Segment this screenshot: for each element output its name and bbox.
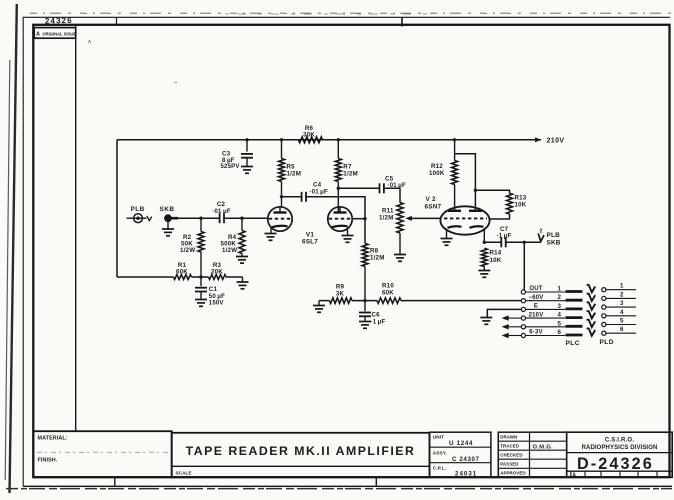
svg-text:10K: 10K [490,257,502,264]
svg-text:5: 5 [558,320,562,327]
svg-text:−60V: −60V [529,295,544,301]
svg-text:6: 6 [620,326,624,333]
svg-text:∼: ∼ [174,80,178,86]
svg-text:C5: C5 [385,176,394,183]
svg-text:·1 μF: ·1 μF [371,320,386,326]
svg-text:A: A [36,32,40,38]
svg-text:3: 3 [620,300,624,307]
svg-text:CHECKED: CHECKED [500,453,522,458]
svg-text:100K: 100K [429,170,445,177]
svg-text:PASSED: PASSED [500,462,518,467]
svg-text:TAPE READER MK.II AMPLIFIER: TAPE READER MK.II AMPLIFIER [186,444,416,458]
svg-text:4: 4 [558,312,562,319]
svg-text:1/2W: 1/2W [180,247,195,254]
svg-text:6·3V: 6·3V [529,330,542,336]
svg-text:60K: 60K [176,269,188,276]
svg-text:C6: C6 [372,311,381,318]
svg-text:R8: R8 [370,248,379,255]
svg-text:150V: 150V [209,301,224,307]
svg-text:C.S.I.R.O.: C.S.I.R.O. [605,438,634,444]
svg-text:V 2: V 2 [426,196,436,203]
svg-text:APPROVED: APPROVED [500,471,525,476]
svg-text:R12: R12 [431,163,443,170]
svg-text:·01 μF: ·01 μF [310,189,329,195]
svg-text:·1 μF: ·1 μF [497,234,512,240]
svg-text:210V: 210V [547,138,565,145]
svg-text:PLB: PLB [547,232,561,239]
svg-text:R11: R11 [382,207,394,214]
svg-text:3K: 3K [336,290,345,297]
svg-text:24031: 24031 [455,471,477,478]
svg-text:UNIT: UNIT [433,435,444,440]
svg-text:PLB: PLB [131,206,145,213]
svg-text:1/2M: 1/2M [343,170,358,177]
svg-text:SKB: SKB [547,239,561,246]
svg-text:TRACED: TRACED [500,444,519,449]
svg-text:U 1244: U 1244 [449,440,473,447]
svg-text:PLD: PLD [600,339,614,346]
svg-text:6SL7: 6SL7 [302,239,318,246]
svg-text:A: A [572,472,576,478]
svg-text:4: 4 [620,309,624,316]
svg-text:D-24326: D-24326 [577,455,654,473]
svg-text:8 μF: 8 μF [222,158,235,164]
svg-text:R13: R13 [515,194,527,201]
svg-text:R14: R14 [490,250,502,257]
svg-text:C 24307: C 24307 [452,456,480,463]
svg-text:RADIOPHYSICS DIVISION: RADIOPHYSICS DIVISION [582,445,658,451]
svg-text:FINISH.: FINISH. [38,457,58,463]
svg-text:E: E [534,304,538,310]
svg-text:MATERIAL:: MATERIAL: [38,436,68,442]
svg-text:DRAWN: DRAWN [500,435,517,440]
svg-text:6SN7: 6SN7 [425,204,442,211]
svg-text:2: 2 [620,291,624,298]
svg-text:60K: 60K [382,289,394,296]
svg-text:1: 1 [558,286,562,293]
svg-text:ASSY.: ASSY. [433,451,447,456]
svg-text:V1: V1 [306,232,314,239]
svg-text:C4: C4 [313,182,322,189]
svg-text:C3: C3 [222,151,231,158]
svg-text:2: 2 [558,294,562,301]
svg-text:30K: 30K [303,131,315,138]
svg-text:OUT: OUT [529,286,542,292]
svg-text:1/2M: 1/2M [287,170,302,177]
svg-text:C2: C2 [217,201,226,208]
svg-text:SKB: SKB [160,206,175,213]
svg-text:3: 3 [558,303,562,310]
svg-text:20K: 20K [211,269,223,276]
svg-text:24326: 24326 [45,16,73,26]
svg-text:PLC: PLC [566,340,580,347]
svg-text:2: 2 [540,228,543,234]
svg-text:525PV: 525PV [221,164,240,170]
svg-text:SCALE: SCALE [176,470,192,475]
svg-text:C1: C1 [209,286,218,293]
svg-text:1/2M: 1/2M [370,255,385,262]
svg-text:1: 1 [620,283,624,290]
svg-text:ʌ: ʌ [87,39,91,45]
svg-text:1/2W: 1/2W [222,247,237,254]
svg-text:·01 μF: ·01 μF [212,209,231,215]
svg-text:5: 5 [620,318,624,325]
svg-text:6: 6 [558,329,562,336]
svg-text:ORIGINAL ISSUE: ORIGINAL ISSUE [42,31,76,36]
svg-text:C7: C7 [500,226,509,233]
svg-text:50 μF: 50 μF [209,294,225,300]
svg-text:O.M.G.: O.M.G. [533,444,554,450]
svg-text:C.P.L.: C.P.L. [433,466,446,471]
svg-text:10K: 10K [515,202,527,209]
svg-text:210V: 210V [529,312,544,318]
svg-text:1/2M: 1/2M [379,215,394,222]
